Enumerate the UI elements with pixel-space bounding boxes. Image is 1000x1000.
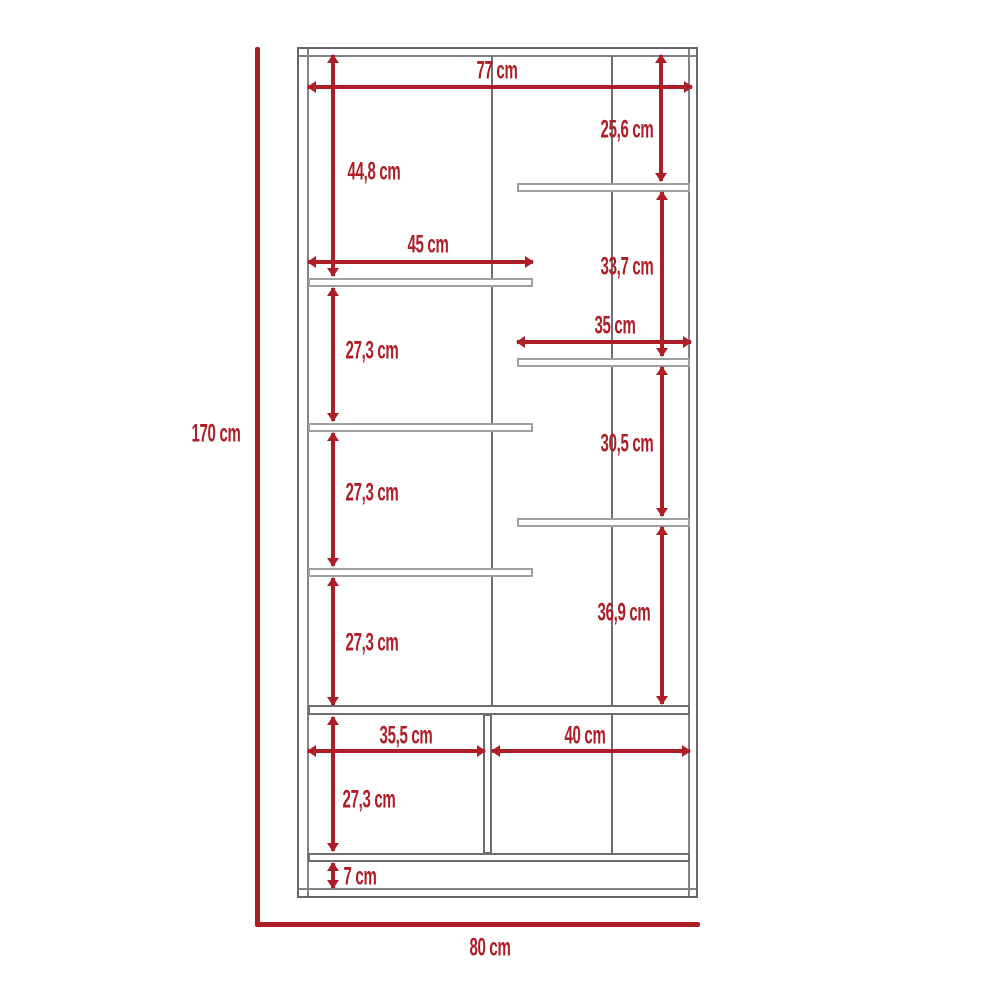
dim-height-right-2-label: 33,7 cm [601,255,654,280]
dim-height-right-4-arrow [660,527,664,704]
dim-height-right-3-arrow [660,367,664,516]
shelf-left-1 [308,278,533,287]
dim-height-base-label: 7 cm [344,865,377,890]
dim-height-left-3-arrow [331,433,335,566]
divider-vertical-bottom [483,714,492,854]
dim-width-bottom-left-label: 35,5 cm [380,724,433,749]
overall-width-line [255,922,700,927]
dim-width-top-label: 77 cm [476,59,517,84]
dim-height-top-left-label: 44,8 cm [348,160,401,185]
vertical-support-center [491,56,493,706]
cabinet-inner-wall-right [688,49,690,896]
dim-width-left-shelf-arrow [308,260,533,264]
dim-width-bottom-right-label: 40 cm [564,724,605,749]
dim-height-left-4-label: 27,3 cm [346,631,399,656]
shelf-left-2 [308,423,533,432]
dim-height-top-right-arrow [659,55,663,181]
dimension-diagram: 170 cm 80 cm 77 cm 25,6 cm 44,8 cm 45 cm… [0,0,1000,1000]
dim-height-base-arrow [331,863,335,888]
dim-height-left-4-arrow [331,578,335,705]
dim-width-right-shelf-label: 35 cm [594,314,635,339]
dim-width-left-shelf-label: 45 cm [407,233,448,258]
overall-height-line [255,47,260,927]
shelf-bottom [308,853,690,862]
dim-height-right-3-label: 30,5 cm [601,432,654,457]
dim-height-left-2-arrow [331,288,335,421]
dim-height-top-right-label: 25,6 cm [601,118,654,143]
dim-height-top-left-arrow [331,55,335,276]
cabinet-inner-wall-left [307,49,309,896]
dim-height-left-3-label: 27,3 cm [346,481,399,506]
divider-horizontal-full [308,705,690,715]
dim-width-top-arrow [308,85,692,89]
dim-width-bottom-right-arrow [492,749,690,753]
shelf-left-3 [308,568,533,577]
dim-height-right-2-arrow [660,192,664,356]
dim-height-left-2-label: 27,3 cm [346,339,399,364]
overall-height-label: 170 cm [191,422,240,447]
dim-width-right-shelf-arrow [517,340,691,344]
dim-height-right-4-label: 36,9 cm [598,601,651,626]
overall-width-label: 80 cm [469,936,510,961]
dim-height-bottom-left-label: 27,3 cm [343,788,396,813]
dim-height-bottom-left-arrow [331,717,335,851]
